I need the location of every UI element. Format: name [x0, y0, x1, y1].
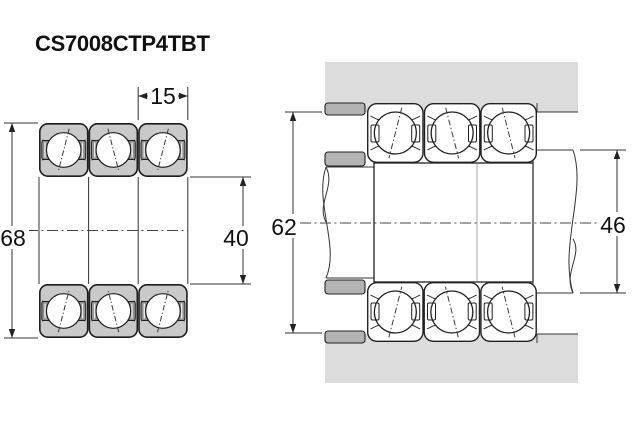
- dim-62-label: 62: [271, 214, 297, 240]
- part-number-label: CS7008CTP4TBT: [35, 31, 210, 56]
- mounted-bearing-row-bottom: [368, 283, 537, 342]
- dimension-bearing-width: 15: [138, 83, 188, 120]
- bearing-diagram-page: CS7008CTP4TBT 68: [0, 0, 640, 440]
- dimension-housing-shoulder: 62: [268, 112, 322, 333]
- bearing-set-view: CS7008CTP4TBT 68: [0, 31, 252, 338]
- dim-40-label: 40: [223, 225, 249, 251]
- bearing-row-bottom: [40, 285, 187, 337]
- mounted-arrangement-view: 62 46: [268, 62, 630, 383]
- dim-15-label: 15: [150, 83, 176, 109]
- dimension-shaft-shoulder: 46: [580, 150, 630, 293]
- bearing-diagram: CS7008CTP4TBT 68: [0, 0, 640, 440]
- dim-46-label: 46: [600, 212, 626, 238]
- bearing-row-top: [40, 124, 187, 176]
- dim-68-label: 68: [0, 225, 26, 251]
- dimension-bore-diameter: 40: [190, 177, 252, 284]
- shaft: [323, 150, 577, 293]
- mounted-bearing-row-top: [368, 104, 537, 163]
